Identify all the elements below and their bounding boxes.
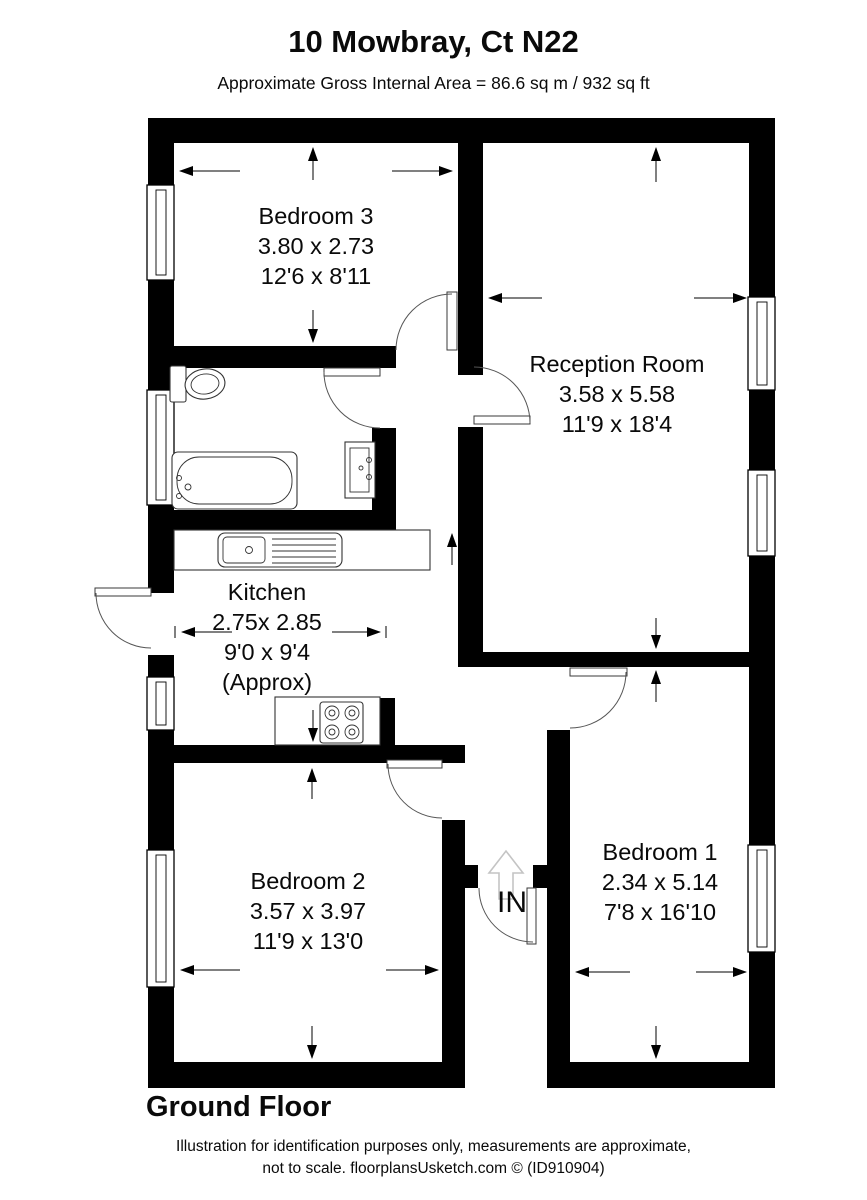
room-name: Bedroom 3	[166, 201, 466, 231]
room-dims-metric: 3.58 x 5.58	[462, 379, 772, 409]
door-bedroom2	[387, 760, 442, 818]
room-name: Bedroom 2	[158, 866, 458, 896]
entrance-label: IN	[472, 886, 552, 920]
bathtub	[172, 452, 297, 509]
disclaimer-line1: Illustration for identification purposes…	[0, 1136, 867, 1158]
room-dims-note: (Approx)	[132, 667, 402, 697]
floorplan-drawing	[0, 0, 867, 1200]
room-dims-metric: 3.57 x 3.97	[158, 896, 458, 926]
kitchen-sink	[218, 533, 342, 567]
bathroom-basin	[345, 442, 375, 498]
room-name: Bedroom 1	[535, 837, 785, 867]
floorplan-page: 10 Mowbray, Ct N22 Approximate Gross Int…	[0, 0, 867, 1200]
room-dims-metric: 2.34 x 5.14	[535, 867, 785, 897]
stove	[320, 702, 363, 743]
room-name: Reception Room	[462, 349, 772, 379]
page-title: 10 Mowbray, Ct N22	[0, 24, 867, 60]
room-dims-imperial: 7'8 x 16'10	[535, 897, 785, 927]
room-dims-imperial: 11'9 x 18'4	[462, 409, 772, 439]
room-dims-imperial: 12'6 x 8'11	[166, 261, 466, 291]
toilet	[170, 366, 227, 402]
room-dims-imperial: 11'9 x 13'0	[158, 926, 458, 956]
room-label-bedroom2: Bedroom 2 3.57 x 3.97 11'9 x 13'0	[158, 866, 458, 956]
door-bathroom	[324, 368, 380, 428]
room-label-kitchen: Kitchen 2.75x 2.85 9'0 x 9'4 (Approx)	[132, 577, 402, 697]
room-dims-metric: 2.75x 2.85	[132, 607, 402, 637]
room-label-reception: Reception Room 3.58 x 5.58 11'9 x 18'4	[462, 349, 772, 439]
room-dims-metric: 3.80 x 2.73	[166, 231, 466, 261]
room-dims-imperial: 9'0 x 9'4	[132, 637, 402, 667]
page-subtitle: Approximate Gross Internal Area = 86.6 s…	[0, 73, 867, 94]
room-name: Kitchen	[132, 577, 402, 607]
door-bedroom1	[570, 668, 627, 728]
door-bedroom3	[396, 292, 457, 350]
window-bathroom-left	[147, 390, 174, 505]
room-label-bedroom1: Bedroom 1 2.34 x 5.14 7'8 x 16'10	[535, 837, 785, 927]
disclaimer: Illustration for identification purposes…	[0, 1136, 867, 1180]
floor-title: Ground Floor	[146, 1091, 331, 1124]
disclaimer-line2: not to scale. floorplansUsketch.com © (I…	[0, 1158, 867, 1180]
room-label-bedroom3: Bedroom 3 3.80 x 2.73 12'6 x 8'11	[166, 201, 466, 291]
window-reception-right-lower	[748, 470, 775, 556]
